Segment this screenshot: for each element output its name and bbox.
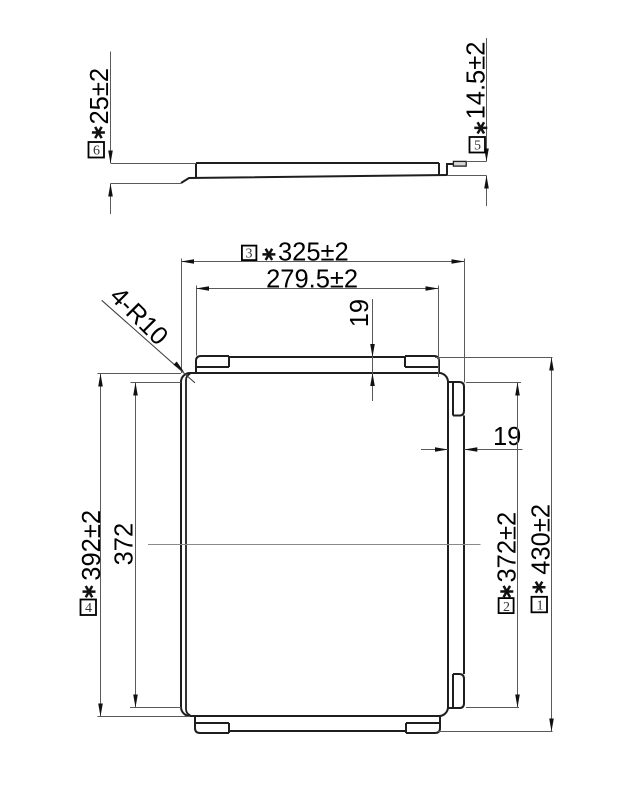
svg-text:279.5±2: 279.5±2 — [266, 265, 358, 293]
svg-text:5: 5 — [474, 139, 481, 154]
svg-text:6: 6 — [93, 144, 100, 159]
svg-text:392±2: 392±2 — [78, 510, 106, 581]
svg-text:372±2: 372±2 — [493, 512, 521, 583]
svg-text:2: 2 — [503, 600, 510, 615]
svg-text:19: 19 — [346, 299, 374, 327]
svg-text:14.5±2: 14.5±2 — [462, 42, 490, 120]
svg-text:430±2: 430±2 — [528, 504, 556, 575]
svg-text:4: 4 — [85, 601, 92, 616]
svg-text:25±2: 25±2 — [86, 68, 114, 125]
svg-text:3: 3 — [246, 247, 253, 262]
svg-text:1: 1 — [537, 599, 544, 614]
svg-text:372: 372 — [110, 523, 138, 566]
svg-text:325±2: 325±2 — [278, 239, 349, 267]
